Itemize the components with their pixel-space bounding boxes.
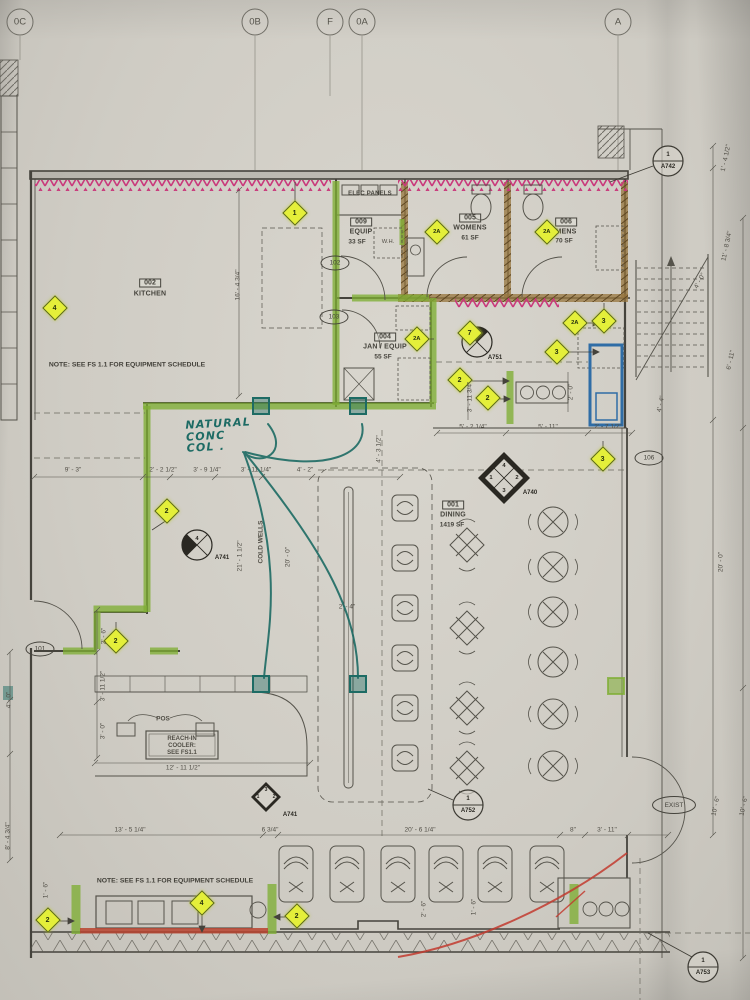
section-a740-sheet: A740 — [523, 490, 537, 496]
dimension: 3' - 11 1/2" — [100, 671, 107, 702]
ref-tag-a752-num: 1 — [466, 796, 469, 802]
grid-bubble-0a: 0A — [349, 9, 376, 36]
ref-tag-a742-sheet: A742 — [661, 164, 675, 170]
dimension: 9' - 3" — [65, 467, 82, 474]
grid-bubble-0c: 0C — [7, 9, 34, 36]
room-number-equip: 009 — [350, 218, 372, 227]
room-area-womens: 61 SF — [461, 235, 478, 242]
room-area-mens: 70 SF — [555, 238, 572, 245]
door-tag-102: 102 — [321, 256, 350, 271]
dimension: 21' - 1 1/2" — [237, 540, 244, 571]
door-tag-103: 103 — [320, 310, 349, 325]
section-a740-top: 4 — [502, 463, 505, 469]
label-reach-in-1: REACH-IN — [167, 736, 196, 742]
room-area-jan: 55 SF — [374, 354, 391, 361]
dimension: 20' - 0" — [285, 547, 292, 567]
dimension: 2' - 7 1/2" — [594, 424, 621, 431]
equipment-schedule-note-top: NOTE: SEE FS 1.1 FOR EQUIPMENT SCHEDULE — [49, 362, 205, 369]
dimension: 3' - 9 1/4" — [193, 467, 220, 474]
dimension: 3' - 0" — [100, 723, 107, 740]
ref-tag-a753-num: 1 — [701, 958, 704, 964]
grid-lines — [20, 36, 618, 170]
dimension: 13' - 5 1/4" — [114, 827, 145, 834]
dimension: 2' - 2 1/2" — [149, 467, 176, 474]
fixtures — [34, 185, 685, 863]
dimension: 5' - 2 1/4" — [459, 424, 486, 431]
room-area-dining: 1419 SF — [440, 522, 465, 529]
label-pos: POS — [156, 716, 170, 723]
concrete-columns — [253, 398, 366, 692]
blue-highlight — [590, 345, 622, 425]
label-reach-in-2: COOLER: — [168, 743, 196, 749]
dimension: 3' - 11 3/4" — [467, 382, 474, 413]
door-tag-101: 101 — [26, 642, 55, 657]
dimension: 8" — [570, 827, 576, 834]
equipment-schedule-note-bottom: NOTE: SEE FS 1.1 FOR EQUIPMENT SCHEDULE — [97, 878, 253, 885]
dimension: 1' - 6" — [43, 882, 50, 899]
dimension: 2' - 0" — [568, 384, 575, 401]
dimension: 2' - 6" — [101, 628, 108, 645]
section-a741-plan-num: 4 — [195, 536, 198, 542]
grid-bubble-0b: 0B — [242, 9, 269, 36]
section-a740-left: 1 — [489, 475, 492, 481]
ref-tag-a742-num: 1 — [666, 152, 669, 158]
dimension: 3' - 11 1/4" — [241, 467, 272, 474]
room-name-womens: WOMENS — [453, 225, 486, 232]
room-number-dining: 001 — [442, 501, 464, 510]
section-a741-plan-sheet: A741 — [215, 555, 229, 561]
dimension: 4' - 2" — [297, 467, 314, 474]
dimension: 2' - 4" — [339, 604, 356, 611]
exterior-structures — [0, 60, 662, 958]
dimension: 1' - 6" — [471, 899, 478, 916]
room-area-equip: 33 SF — [348, 239, 365, 246]
room-number-jan: 004 — [374, 333, 396, 342]
section-a741-bot-top: 3 — [265, 787, 268, 793]
room-name-dining: DINING — [440, 512, 466, 519]
room-number-kitchen: 002 — [139, 279, 161, 288]
stair — [636, 254, 708, 380]
label-cold-wells: COLD WELLS — [258, 521, 265, 564]
walls — [30, 171, 670, 958]
dimension: 4' - 0" — [6, 692, 13, 709]
section-a740-bottom: 3 — [502, 488, 505, 494]
room-name-jan: JAN / EQUIP — [363, 344, 407, 351]
dimension: 4' - 3 1/2" — [376, 435, 383, 462]
section-a741-bot-right: 2 — [273, 794, 276, 800]
dimension-lines — [7, 143, 746, 961]
dimension: 20' - 0" — [718, 552, 725, 572]
label-reach-in-3: SEE FS1.1 — [167, 750, 197, 756]
furniture — [95, 228, 630, 928]
ref-tag-a752-sheet: A752 — [461, 808, 475, 814]
handwritten-natural-conc-col: NATURAL CONC COL . — [185, 416, 252, 454]
ref-tag-a753-sheet: A753 — [696, 970, 710, 976]
floorplan-photo: 0C 0B F 0A A 002 KITCHEN ELEC PANELS 009… — [0, 0, 750, 1000]
dimension: 20' - 6 1/4" — [404, 827, 435, 834]
room-name-kitchen: KITCHEN — [134, 291, 167, 298]
section-markers — [182, 146, 718, 982]
dimension: 2' - 6" — [421, 901, 428, 918]
room-name-equip: EQUIP — [350, 229, 373, 236]
dimension: 8' - 4 3/4" — [5, 822, 12, 849]
dimension: 3' - 11" — [597, 827, 617, 834]
grid-bubble-f: F — [317, 9, 344, 36]
dimension: 6 3/4" — [262, 827, 279, 834]
pink-highlight — [35, 180, 628, 308]
dimension: 16' - 4 3/4" — [235, 269, 242, 300]
dimension: 12' - 11 1/2" — [166, 765, 200, 772]
label-exist-door: EXIST — [652, 796, 696, 814]
grid-bubble-a: A — [605, 9, 632, 36]
dimension: 5' - 11" — [538, 424, 558, 431]
room-number-mens: 006 — [555, 218, 577, 227]
door-tag-106: 106 — [635, 451, 664, 466]
room-number-womens: 005 — [459, 214, 481, 223]
section-a741-bot-left: 1 — [257, 794, 260, 800]
section-a751-sheet: A751 — [488, 355, 502, 361]
label-elec-panels: ELEC PANELS — [348, 191, 392, 197]
floorplan-linework — [0, 0, 750, 1000]
section-a740-right: 2 — [515, 475, 518, 481]
section-a741-bot-sheet: A741 — [283, 812, 297, 818]
label-water-heater: W.H. — [382, 239, 395, 245]
